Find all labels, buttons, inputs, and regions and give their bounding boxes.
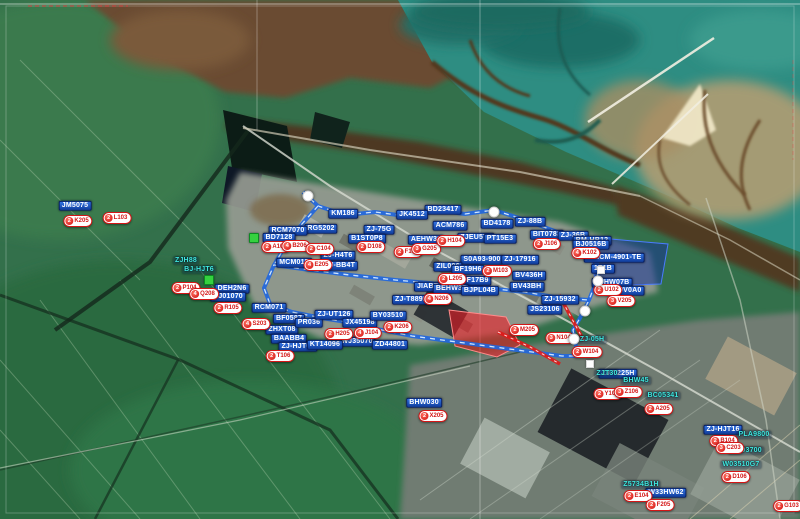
waypoint-dot[interactable]	[489, 207, 500, 218]
map-label[interactable]: BV43BH	[510, 282, 545, 292]
map-label[interactable]: ZD44801	[372, 340, 408, 350]
badge-label: A205	[655, 406, 669, 412]
incident-badge[interactable]: 4K102	[571, 247, 600, 259]
waypoint-dot[interactable]	[569, 334, 580, 345]
incident-badge[interactable]: 3C203	[715, 442, 744, 454]
map-label-cyan[interactable]: PLA9800	[737, 431, 772, 439]
pin-count-icon: 3	[413, 245, 421, 253]
incident-badge[interactable]: 4N206	[423, 293, 452, 305]
waypoint-dot[interactable]	[580, 306, 591, 317]
badge-label: G205	[422, 246, 437, 252]
pin-count-icon: 2	[595, 390, 603, 398]
badge-label: M205	[520, 327, 535, 333]
pin-count-icon: 2	[625, 492, 633, 500]
badge-label: C104	[316, 246, 330, 252]
map-label[interactable]: ACM786	[433, 221, 468, 231]
map-label[interactable]: RCM071	[252, 303, 287, 313]
incident-badge[interactable]: 4Q208	[189, 288, 219, 300]
map-label[interactable]: JS23106	[527, 305, 562, 315]
badge-label: F205	[657, 502, 671, 508]
badge-label: K205	[74, 218, 88, 224]
badge-label: H104	[447, 238, 461, 244]
incident-badge[interactable]: 2X205	[418, 410, 447, 422]
pin-count-icon: 2	[326, 330, 334, 338]
pin-count-icon: 2	[268, 352, 276, 360]
badge-label: L205	[449, 276, 463, 282]
badge-label: G103	[784, 503, 799, 509]
badge-label: C203	[726, 445, 740, 451]
incident-badge[interactable]: 3G205	[411, 243, 441, 255]
pin-count-icon: 3	[717, 444, 725, 452]
incident-badge[interactable]: 2T106	[266, 350, 295, 362]
pin-count-icon: 3	[608, 297, 616, 305]
incident-badge[interactable]: 2H104	[436, 235, 465, 247]
pin-count-icon: 2	[535, 240, 543, 248]
incident-badge[interactable]: 2C104	[305, 243, 334, 255]
badge-label: J104	[365, 330, 378, 336]
map-label[interactable]: ZJ-88B	[515, 217, 546, 227]
badge-label: K102	[582, 250, 596, 256]
pin-count-icon: 2	[385, 323, 393, 331]
badge-label: H205	[335, 331, 349, 337]
pin-count-icon: 2	[173, 284, 181, 292]
incident-badge[interactable]: 2K206	[383, 321, 412, 333]
badge-label: E104	[634, 493, 648, 499]
incident-badge[interactable]: 4S203	[241, 318, 270, 330]
pin-count-icon: 2	[358, 243, 366, 251]
map-label[interactable]: ZJ-17916	[501, 255, 539, 265]
green-marker[interactable]	[249, 233, 259, 243]
pin-count-icon: 2	[263, 243, 271, 251]
pin-count-icon: 4	[283, 242, 291, 250]
badge-label: U102	[604, 287, 618, 293]
waypoint-square[interactable]	[597, 266, 605, 274]
pin-count-icon: 4	[356, 329, 364, 337]
map-label[interactable]: ZJ-15932	[541, 295, 579, 305]
incident-badge[interactable]: 2R105	[213, 302, 242, 314]
incident-badge[interactable]: 2F205	[646, 499, 675, 511]
map-label[interactable]: KM186	[328, 209, 358, 219]
pin-count-icon: 2	[396, 248, 404, 256]
pin-count-icon: 3	[547, 334, 555, 342]
incident-badge[interactable]: 2K205	[63, 215, 92, 227]
map-label[interactable]: PT15E3	[484, 234, 517, 244]
map-label[interactable]: BY03510	[370, 311, 407, 321]
incident-badge[interactable]: 2D108	[356, 241, 385, 253]
map-label[interactable]: BD4178	[481, 219, 514, 229]
map-label[interactable]: KT14096	[307, 340, 343, 350]
badge-label: Z106	[625, 389, 639, 395]
badge-label: T106	[277, 353, 291, 359]
pin-count-icon: 2	[440, 275, 448, 283]
badge-label: D108	[367, 244, 381, 250]
incident-badge[interactable]: 2D106	[721, 471, 750, 483]
map-label[interactable]: BD23417	[425, 205, 462, 215]
pin-count-icon: 4	[305, 261, 313, 269]
pin-count-icon: 2	[484, 267, 492, 275]
incident-badge[interactable]: 4J104	[354, 327, 382, 339]
green-marker[interactable]	[204, 275, 214, 285]
waypoint-dot[interactable]	[303, 191, 314, 202]
badge-label: K206	[394, 324, 408, 330]
pin-count-icon: 2	[307, 245, 315, 253]
incident-badge[interactable]: 2G103	[773, 500, 800, 512]
map-label-cyan[interactable]: BJ-HJT6	[182, 266, 216, 274]
incident-badge[interactable]: 3Z106	[614, 386, 643, 398]
incident-badge[interactable]: 2M103	[482, 265, 512, 277]
map-label[interactable]: BV436H	[512, 271, 546, 281]
pin-count-icon: 4	[573, 249, 581, 257]
waypoint-square[interactable]	[586, 360, 594, 368]
pin-count-icon: 2	[574, 348, 582, 356]
badge-label: S203	[252, 321, 266, 327]
map-label-cyan[interactable]: BC05341	[646, 392, 681, 400]
badge-label: N206	[434, 296, 448, 302]
incident-badge[interactable]: 2J106	[533, 238, 561, 250]
pin-count-icon: 2	[438, 237, 446, 245]
pin-count-icon: 2	[648, 501, 656, 509]
map-label[interactable]: RG5202	[304, 224, 337, 234]
pin-count-icon: 2	[215, 304, 223, 312]
waypoint-dot[interactable]	[593, 276, 604, 287]
pin-count-icon: 4	[243, 320, 251, 328]
pin-count-icon: 4	[191, 290, 199, 298]
incident-badge[interactable]: 2W104	[572, 346, 603, 358]
incident-badge[interactable]: 3V205	[606, 295, 635, 307]
map-label[interactable]: JM5075	[59, 201, 92, 211]
badge-label: W104	[583, 349, 599, 355]
map-label-cyan[interactable]: ZJT30	[594, 370, 619, 378]
map-label-cyan[interactable]: ZJH88	[173, 257, 199, 265]
map-label[interactable]: BHW030	[406, 398, 442, 408]
map-label[interactable]: S0A93-900	[460, 255, 503, 265]
badge-label: J106	[544, 241, 557, 247]
satellite-map[interactable]: JM5075KM186RG5202RCM7070ZJ-75GB1ST0P8BD7…	[0, 0, 800, 519]
pin-count-icon: 2	[775, 502, 783, 510]
badge-label: M103	[493, 268, 508, 274]
pin-count-icon: 2	[105, 214, 113, 222]
map-label-cyan[interactable]: ZJ-05H	[578, 336, 607, 344]
badge-label: X205	[429, 413, 443, 419]
map-label-cyan[interactable]: W03510G7	[720, 461, 761, 469]
pin-count-icon: 2	[595, 286, 603, 294]
map-label[interactable]: JK4512	[396, 210, 428, 220]
map-label[interactable]: BJPL04B	[461, 286, 499, 296]
marker-layer: JM5075KM186RG5202RCM7070ZJ-75GB1ST0P8BD7…	[0, 0, 800, 519]
badge-label: R105	[224, 305, 238, 311]
badge-label: V205	[617, 298, 631, 304]
badge-label: L103	[114, 215, 128, 221]
pin-count-icon: 3	[616, 388, 624, 396]
map-label-cyan[interactable]: BHW45	[621, 377, 651, 385]
incident-badge[interactable]: 2L103	[103, 212, 132, 224]
pin-count-icon: 2	[646, 405, 654, 413]
pin-count-icon: 2	[511, 326, 519, 334]
badge-label: D106	[732, 474, 746, 480]
incident-badge[interactable]: 2H205	[324, 328, 353, 340]
incident-badge[interactable]: 2L205	[438, 273, 467, 285]
pin-count-icon: 2	[723, 473, 731, 481]
incident-badge[interactable]: 2M205	[509, 324, 539, 336]
incident-badge[interactable]: 4E205	[303, 259, 332, 271]
pin-count-icon: 2	[65, 217, 73, 225]
map-label-cyan[interactable]: Z5734B1H	[621, 481, 660, 489]
badge-label: Q208	[200, 291, 215, 297]
badge-label: E205	[314, 262, 328, 268]
pin-count-icon: 4	[425, 295, 433, 303]
incident-badge[interactable]: 2A205	[644, 403, 673, 415]
pin-count-icon: 2	[420, 412, 428, 420]
